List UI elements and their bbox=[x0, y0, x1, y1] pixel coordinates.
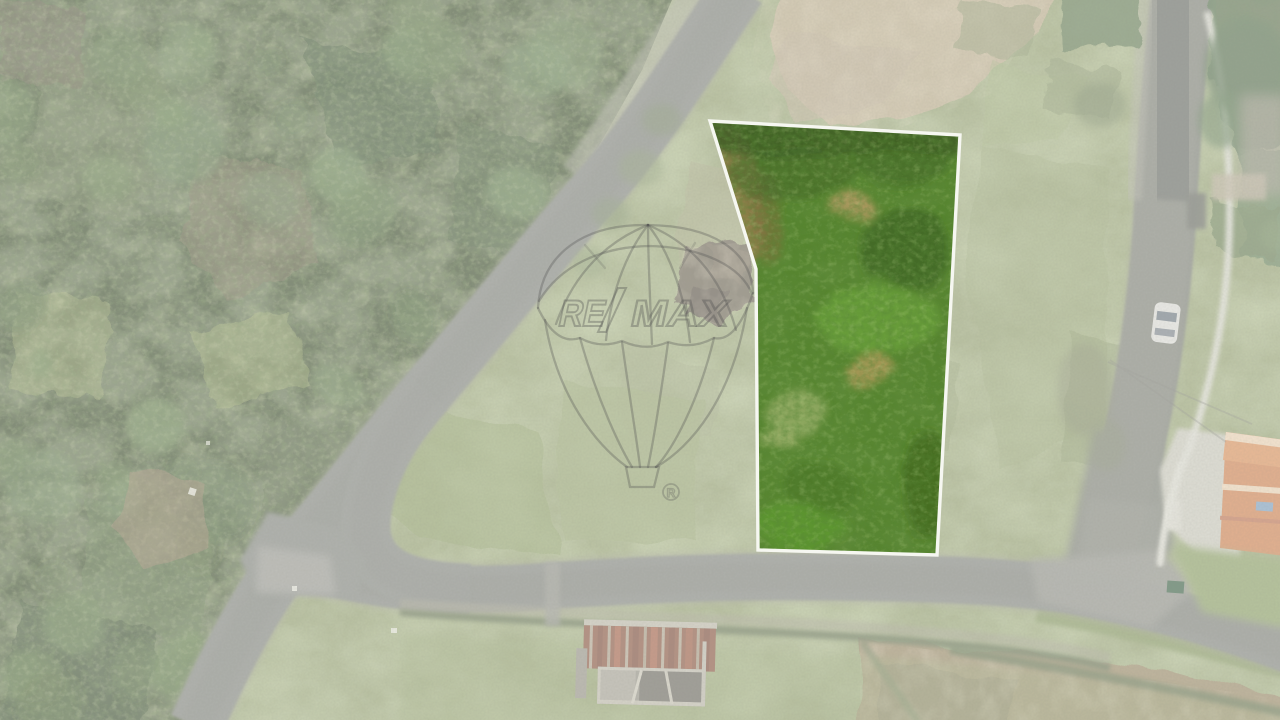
svg-text:MAX: MAX bbox=[627, 292, 733, 334]
svg-text:R: R bbox=[667, 486, 676, 500]
svg-text:RE: RE bbox=[555, 292, 610, 334]
